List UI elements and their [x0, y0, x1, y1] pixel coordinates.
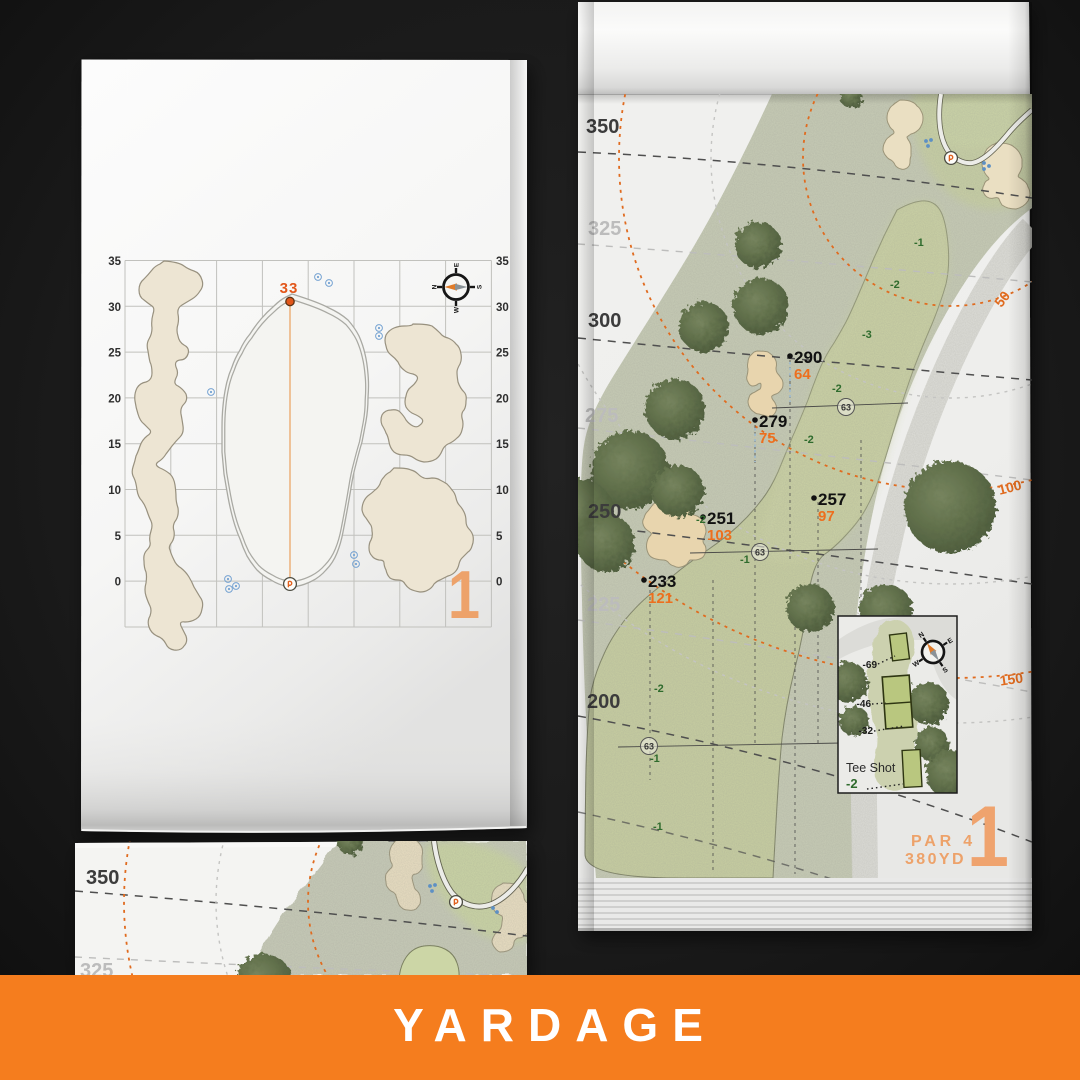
- svg-text:0: 0: [496, 577, 502, 589]
- svg-text:15: 15: [108, 439, 121, 451]
- svg-text:-3: -3: [862, 329, 872, 341]
- svg-text:15: 15: [496, 439, 509, 451]
- svg-text:233: 233: [648, 572, 676, 591]
- svg-text:-2: -2: [654, 683, 664, 695]
- svg-text:350: 350: [86, 867, 119, 889]
- svg-text:1: 1: [448, 558, 480, 633]
- svg-text:30: 30: [496, 302, 509, 314]
- svg-text:20: 20: [108, 393, 121, 405]
- svg-text:0: 0: [115, 577, 121, 589]
- svg-text:5: 5: [115, 531, 122, 543]
- svg-text:64: 64: [794, 366, 811, 383]
- svg-text:380YD: 380YD: [905, 851, 966, 868]
- svg-text:W: W: [453, 306, 460, 313]
- svg-text:75: 75: [759, 430, 776, 447]
- svg-text:257: 257: [818, 490, 846, 509]
- svg-text:33: 33: [280, 280, 299, 297]
- svg-text:YARDAGE: YARDAGE: [393, 999, 717, 1051]
- svg-text:-2: -2: [890, 279, 900, 291]
- svg-text:35: 35: [496, 256, 509, 268]
- svg-text:-1: -1: [650, 753, 660, 765]
- svg-text:63: 63: [644, 742, 654, 752]
- svg-text:279: 279: [759, 412, 787, 431]
- svg-text:10: 10: [496, 485, 509, 497]
- svg-text:-1: -1: [740, 554, 750, 566]
- svg-text:Tee Shot: Tee Shot: [846, 761, 896, 775]
- svg-text:N: N: [431, 284, 438, 289]
- svg-text:290: 290: [794, 348, 822, 367]
- svg-text:251: 251: [707, 509, 735, 528]
- svg-text:63: 63: [841, 403, 851, 413]
- svg-text:-46: -46: [857, 699, 872, 710]
- svg-text:103: 103: [707, 527, 732, 544]
- svg-text:63: 63: [755, 548, 765, 558]
- svg-text:97: 97: [818, 508, 835, 525]
- svg-text:25: 25: [496, 348, 509, 360]
- svg-text:-2: -2: [846, 776, 858, 791]
- svg-text:1: 1: [967, 790, 1009, 886]
- svg-text:E: E: [453, 262, 460, 267]
- svg-text:25: 25: [108, 348, 121, 360]
- svg-text:-32: -32: [859, 726, 874, 737]
- svg-text:10: 10: [108, 485, 121, 497]
- svg-text:35: 35: [108, 256, 121, 268]
- svg-text:-1: -1: [653, 821, 663, 833]
- svg-text:-1: -1: [914, 237, 924, 249]
- svg-text:30: 30: [108, 302, 121, 314]
- svg-text:121: 121: [648, 590, 673, 607]
- svg-text:-2: -2: [696, 514, 706, 526]
- svg-text:-2: -2: [804, 434, 814, 446]
- svg-text:S: S: [476, 284, 483, 289]
- svg-text:5: 5: [496, 531, 503, 543]
- svg-text:20: 20: [496, 393, 509, 405]
- svg-text:-2: -2: [832, 383, 842, 395]
- svg-text:-69: -69: [863, 660, 878, 671]
